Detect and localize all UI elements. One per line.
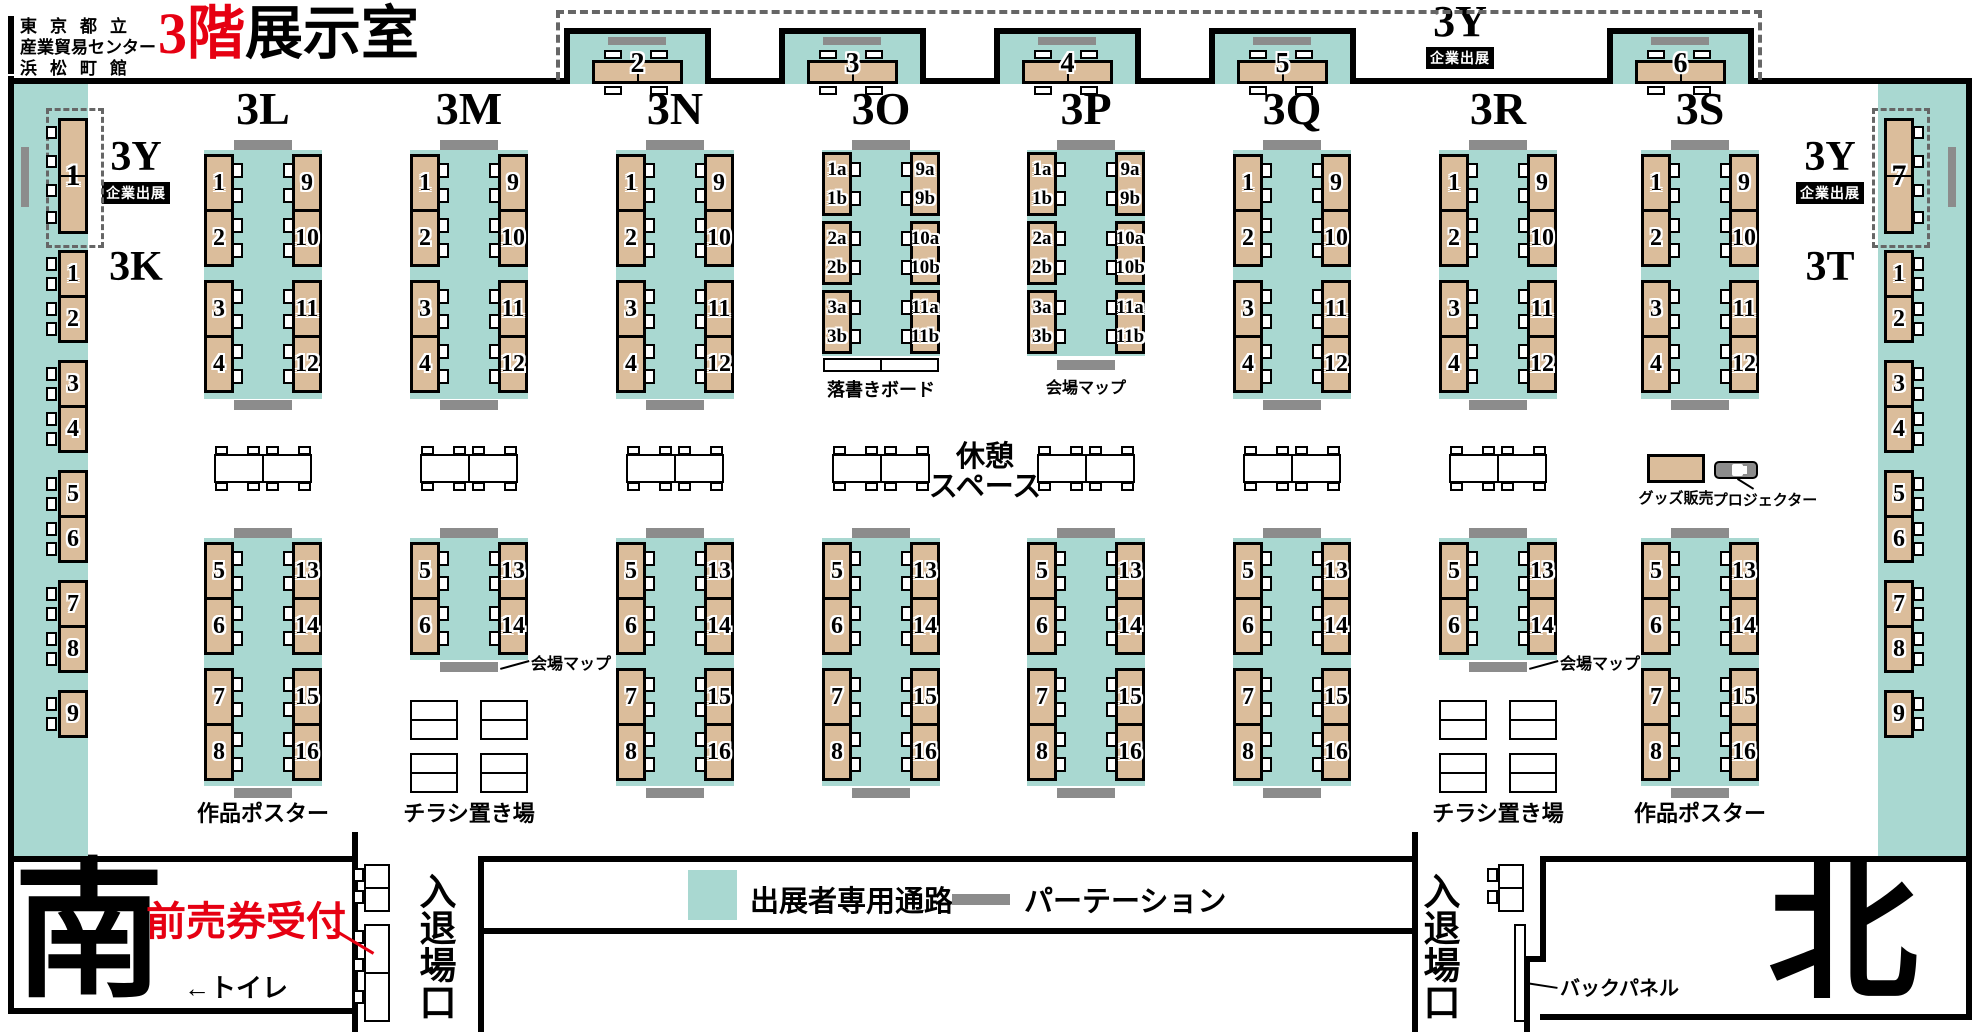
chair (1261, 702, 1272, 717)
chair (266, 482, 279, 491)
chair (695, 551, 706, 566)
chair (215, 446, 228, 455)
chair (1261, 163, 1272, 178)
chair (232, 631, 243, 646)
chair (644, 314, 655, 329)
chair (1487, 890, 1498, 904)
partition (1057, 140, 1115, 150)
chair (1669, 369, 1680, 384)
chair (1312, 757, 1323, 772)
chair (1106, 260, 1117, 275)
chair (1518, 551, 1529, 566)
booth-3N-13: 13 (704, 542, 734, 600)
chair (1261, 289, 1272, 304)
booth-3M-2: 2 (410, 209, 440, 267)
partition (1263, 400, 1321, 410)
booth-number: 3 (785, 50, 920, 80)
chair (46, 542, 57, 556)
rest-table (1449, 454, 1547, 483)
venue-name-line3: 浜松町館 (20, 54, 170, 74)
chair (1913, 302, 1924, 316)
chair (1720, 606, 1731, 621)
booth-3Q-16: 16 (1321, 723, 1351, 781)
booth-3S-7: 7 (1641, 668, 1671, 726)
booth-3M-13: 13 (498, 542, 528, 600)
booth-3N-10: 10 (704, 209, 734, 267)
chair (1106, 576, 1117, 591)
booth-3R-2: 2 (1439, 209, 1469, 267)
chair (1669, 289, 1680, 304)
chair (1106, 329, 1117, 344)
chair (1312, 369, 1323, 384)
chair (695, 732, 706, 747)
booth-3K-4: 4 (58, 405, 88, 453)
chair (1450, 482, 1463, 491)
legend-partition-swatch (952, 894, 1010, 905)
chair (1312, 314, 1323, 329)
booth-3Q-1: 1 (1233, 154, 1263, 212)
chair (247, 446, 260, 455)
chair (1669, 732, 1680, 747)
booth-3T-2: 2 (1884, 295, 1914, 343)
chair (695, 606, 706, 621)
chair (489, 218, 500, 233)
partition (440, 400, 498, 410)
chair (1913, 697, 1924, 711)
ticket-reception-label: 前売券受付 (146, 902, 346, 942)
booth-3K-3: 3 (58, 360, 88, 408)
wall (1412, 832, 1418, 1032)
chair (1106, 551, 1117, 566)
chair (283, 243, 294, 258)
right-3y-badge-wrap: 企業出展 (1786, 182, 1874, 204)
chair (644, 576, 655, 591)
chair (46, 367, 57, 381)
chair (1261, 576, 1272, 591)
chair (710, 482, 723, 491)
chair (438, 243, 449, 258)
island-label-3Q: 3Q (1212, 84, 1372, 138)
chair (1312, 732, 1323, 747)
flyer-table (1509, 753, 1557, 793)
partition (1671, 140, 1729, 150)
partition (1469, 400, 1527, 410)
partition (1057, 360, 1115, 370)
chair (46, 211, 57, 224)
chair (1913, 184, 1924, 197)
chair (46, 477, 57, 491)
booth-3O-13: 13 (910, 542, 940, 600)
corporate-zone-outline (556, 10, 1762, 80)
flyer-table (480, 700, 528, 740)
chair (1467, 369, 1478, 384)
chair (1720, 757, 1731, 772)
projector-nub (1743, 466, 1747, 474)
area-label: 作品ポスター (1605, 796, 1795, 822)
chair (1669, 677, 1680, 692)
partition (1263, 528, 1321, 538)
partition (234, 400, 292, 410)
wall (1540, 1014, 1972, 1020)
chair (453, 446, 466, 455)
legend-partition-label: パーテーション (1024, 878, 1254, 920)
chair (1261, 757, 1272, 772)
backpanel-label: バックパネル (1560, 972, 1679, 1001)
booth-3N-1: 1 (616, 154, 646, 212)
chair (283, 677, 294, 692)
booth-3L-12: 12 (292, 335, 322, 393)
booth-3P-15: 15 (1115, 668, 1145, 726)
partition (608, 37, 666, 45)
chair (1055, 191, 1066, 206)
chair (1467, 606, 1478, 621)
booth-3P-2a2b: 2a2b (1027, 221, 1057, 285)
chair (283, 289, 294, 304)
chair (1106, 677, 1117, 692)
chair (1913, 432, 1924, 446)
chair (283, 369, 294, 384)
chair (1913, 387, 1924, 401)
chair (1121, 446, 1134, 455)
booth-3M-3: 3 (410, 280, 440, 338)
chair (1720, 631, 1731, 646)
reception-desk (364, 924, 390, 1022)
chair (1121, 482, 1134, 491)
booth-3Q-3: 3 (1233, 280, 1263, 338)
chair (1055, 677, 1066, 692)
booth-3O-8: 8 (822, 723, 852, 781)
chair (1720, 702, 1731, 717)
flyer-table (1439, 700, 1487, 740)
chair (901, 677, 912, 692)
island-label-3P: 3P (1006, 84, 1166, 138)
booth-3M-9: 9 (498, 154, 528, 212)
chair (283, 732, 294, 747)
island-label-3L: 3L (183, 84, 343, 138)
toilet-label: ←トイレ (184, 968, 288, 1005)
chair (1467, 218, 1478, 233)
chair (644, 631, 655, 646)
chair (1669, 344, 1680, 359)
chair (298, 482, 311, 491)
floor-map: 東京都立 産業貿易センター 浜松町館 3階展示室 3Y 企業出展 3Y 企業出展… (0, 0, 1980, 1032)
chair (489, 344, 500, 359)
chair (850, 162, 861, 177)
chair (438, 606, 449, 621)
chair (1089, 482, 1102, 491)
chair (1533, 446, 1546, 455)
chair (1913, 257, 1924, 271)
booth-3N-2: 2 (616, 209, 646, 267)
chair (678, 482, 691, 491)
chair (1106, 732, 1117, 747)
chair (901, 551, 912, 566)
booth-3L-2: 2 (204, 209, 234, 267)
booth-3R-13: 13 (1527, 542, 1557, 600)
partition (1948, 147, 1956, 207)
booth-3M-5: 5 (410, 542, 440, 600)
chair (46, 717, 57, 731)
chair (1106, 162, 1117, 177)
right-3y-label: 3Y (1794, 136, 1866, 178)
chair (353, 868, 364, 882)
rest-table (626, 454, 724, 483)
booth-3K-7: 7 (58, 580, 88, 628)
chair (46, 607, 57, 621)
graffiti-board (823, 358, 939, 372)
chair (850, 631, 861, 646)
chair (695, 576, 706, 591)
alcove-wall (920, 28, 926, 84)
south-label: 南 (14, 858, 164, 1008)
booth-3L-4: 4 (204, 335, 234, 393)
chair (1518, 218, 1529, 233)
booth-3S-9: 9 (1729, 154, 1759, 212)
area-label: 作品ポスター (168, 796, 358, 822)
chair (283, 702, 294, 717)
booth-3Q-14: 14 (1321, 597, 1351, 655)
booth-3P-14: 14 (1115, 597, 1145, 655)
chair (1106, 757, 1117, 772)
chair (644, 606, 655, 621)
chair (504, 482, 517, 491)
chair (644, 218, 655, 233)
chair (1913, 542, 1924, 556)
booth-3Q-9: 9 (1321, 154, 1351, 212)
chair (695, 369, 706, 384)
chair (850, 231, 861, 246)
booth-3R-3: 3 (1439, 280, 1469, 338)
chair (1467, 243, 1478, 258)
chair (695, 314, 706, 329)
booth-3O-16: 16 (910, 723, 940, 781)
booth-3S-12: 12 (1729, 335, 1759, 393)
chair (1055, 606, 1066, 621)
chair (1720, 344, 1731, 359)
venue-name-line1: 東京都立 (20, 12, 170, 32)
chair (1261, 243, 1272, 258)
booth-3N-12: 12 (704, 335, 734, 393)
wall (1540, 856, 1546, 962)
chair (1106, 300, 1117, 315)
booth-3M-1: 1 (410, 154, 440, 212)
booth-3Q-6: 6 (1233, 597, 1263, 655)
booth-3L-9: 9 (292, 154, 322, 212)
chair (1669, 606, 1680, 621)
chair (438, 369, 449, 384)
booth-3L-16: 16 (292, 723, 322, 781)
island-label-3R: 3R (1418, 84, 1578, 138)
chair (1518, 163, 1529, 178)
chair (283, 344, 294, 359)
chair (438, 188, 449, 203)
booth-3L-7: 7 (204, 668, 234, 726)
chair (1518, 369, 1529, 384)
chair (46, 387, 57, 401)
chair (283, 551, 294, 566)
wall (484, 856, 1412, 862)
partition (1671, 400, 1729, 410)
chair (1533, 482, 1546, 491)
wall (484, 928, 1412, 934)
chair (1070, 446, 1083, 455)
chair (46, 277, 57, 291)
map-pointer-line (1529, 660, 1559, 670)
chair (46, 302, 57, 316)
chair (1467, 344, 1478, 359)
chair (695, 757, 706, 772)
chair (1669, 218, 1680, 233)
partition (440, 528, 498, 538)
wall (8, 856, 352, 862)
flyer-table (1439, 753, 1487, 793)
chair (489, 188, 500, 203)
chair (1312, 551, 1323, 566)
chair (916, 446, 929, 455)
booth-3S-13: 13 (1729, 542, 1759, 600)
booth-3Q-2: 2 (1233, 209, 1263, 267)
booth-3O-14: 14 (910, 597, 940, 655)
chair (1295, 446, 1308, 455)
partition (852, 528, 910, 538)
chair (1312, 576, 1323, 591)
chair (46, 412, 57, 426)
booth-3Y-7: 7 (1884, 118, 1914, 234)
left-3y-badge-wrap: 企業出展 (92, 182, 180, 204)
chair (1055, 732, 1066, 747)
booth-3K-9: 9 (58, 690, 88, 738)
booth-3L-14: 14 (292, 597, 322, 655)
booth-3T-3: 3 (1884, 360, 1914, 408)
chair (1913, 632, 1924, 646)
chair (850, 191, 861, 206)
rest-table (214, 454, 312, 483)
chair (1244, 482, 1257, 491)
chair (695, 702, 706, 717)
booth-3L-11: 11 (292, 280, 322, 338)
booth-3L-5: 5 (204, 542, 234, 600)
partition (1651, 37, 1709, 45)
chair (1518, 606, 1529, 621)
chair (901, 757, 912, 772)
partition (1057, 528, 1115, 538)
booth-3N-11: 11 (704, 280, 734, 338)
chair (1913, 155, 1924, 168)
chair (1720, 289, 1731, 304)
projector-label: プロジェクター (1706, 489, 1824, 510)
chair (1913, 717, 1924, 731)
chair (1720, 314, 1731, 329)
booth-3S-3: 3 (1641, 280, 1671, 338)
block-label-3k: 3K (100, 246, 172, 288)
booth-number: 6 (1613, 50, 1748, 80)
chair (232, 606, 243, 621)
chair (232, 369, 243, 384)
flyer-table (410, 700, 458, 740)
chair (916, 482, 929, 491)
chair (695, 631, 706, 646)
goods-table (1647, 454, 1705, 483)
chair (901, 702, 912, 717)
chair (1518, 243, 1529, 258)
booth-3K-2: 2 (58, 295, 88, 343)
booth-3N-3: 3 (616, 280, 646, 338)
chair (1295, 482, 1308, 491)
booth-3K-1: 1 (58, 250, 88, 298)
booth-3N-16: 16 (704, 723, 734, 781)
partition (646, 788, 704, 798)
chair (901, 300, 912, 315)
chair (1055, 162, 1066, 177)
booth-3O-15: 15 (910, 668, 940, 726)
chair (1089, 446, 1102, 455)
chair (695, 289, 706, 304)
chair (1261, 631, 1272, 646)
booth-3M-14: 14 (498, 597, 528, 655)
booth-3N-8: 8 (616, 723, 646, 781)
chair (1312, 344, 1323, 359)
chair (1913, 367, 1924, 381)
chair (644, 677, 655, 692)
chair (1055, 702, 1066, 717)
chair (1261, 188, 1272, 203)
partition (852, 140, 910, 150)
block-label-3t: 3T (1794, 246, 1866, 288)
venue-map-label: 会場マップ (1016, 374, 1156, 394)
chair (1312, 289, 1323, 304)
chair (1467, 163, 1478, 178)
chair (1913, 607, 1924, 621)
chair (1467, 289, 1478, 304)
partition (1057, 788, 1115, 798)
chair (489, 551, 500, 566)
island-label-3M: 3M (389, 84, 549, 138)
chair (850, 757, 861, 772)
chair (901, 576, 912, 591)
booth-3L-6: 6 (204, 597, 234, 655)
chair (232, 218, 243, 233)
booth-3R-14: 14 (1527, 597, 1557, 655)
chair (644, 243, 655, 258)
chair (215, 482, 228, 491)
booth-3N-6: 6 (616, 597, 646, 655)
chair (850, 551, 861, 566)
chair (1055, 757, 1066, 772)
chair (833, 446, 846, 455)
chair (489, 289, 500, 304)
booth-3T-5: 5 (1884, 470, 1914, 518)
booth-3M-4: 4 (410, 335, 440, 393)
area-label: チラシ置き場 (374, 796, 564, 822)
booth-3P-1a1b: 1a1b (1027, 152, 1057, 216)
chair (695, 344, 706, 359)
chair (1518, 314, 1529, 329)
chair (850, 732, 861, 747)
chair (232, 344, 243, 359)
partition (234, 528, 292, 538)
chair (1518, 631, 1529, 646)
booth-3K-5: 5 (58, 470, 88, 518)
chair (901, 260, 912, 275)
chair (644, 702, 655, 717)
chair (901, 191, 912, 206)
booth-3P-6: 6 (1027, 597, 1057, 655)
chair (46, 184, 57, 197)
booth-3S-4: 4 (1641, 335, 1671, 393)
flyer-table (410, 753, 458, 793)
legend-aisle-swatch (688, 870, 737, 920)
chair (1720, 243, 1731, 258)
